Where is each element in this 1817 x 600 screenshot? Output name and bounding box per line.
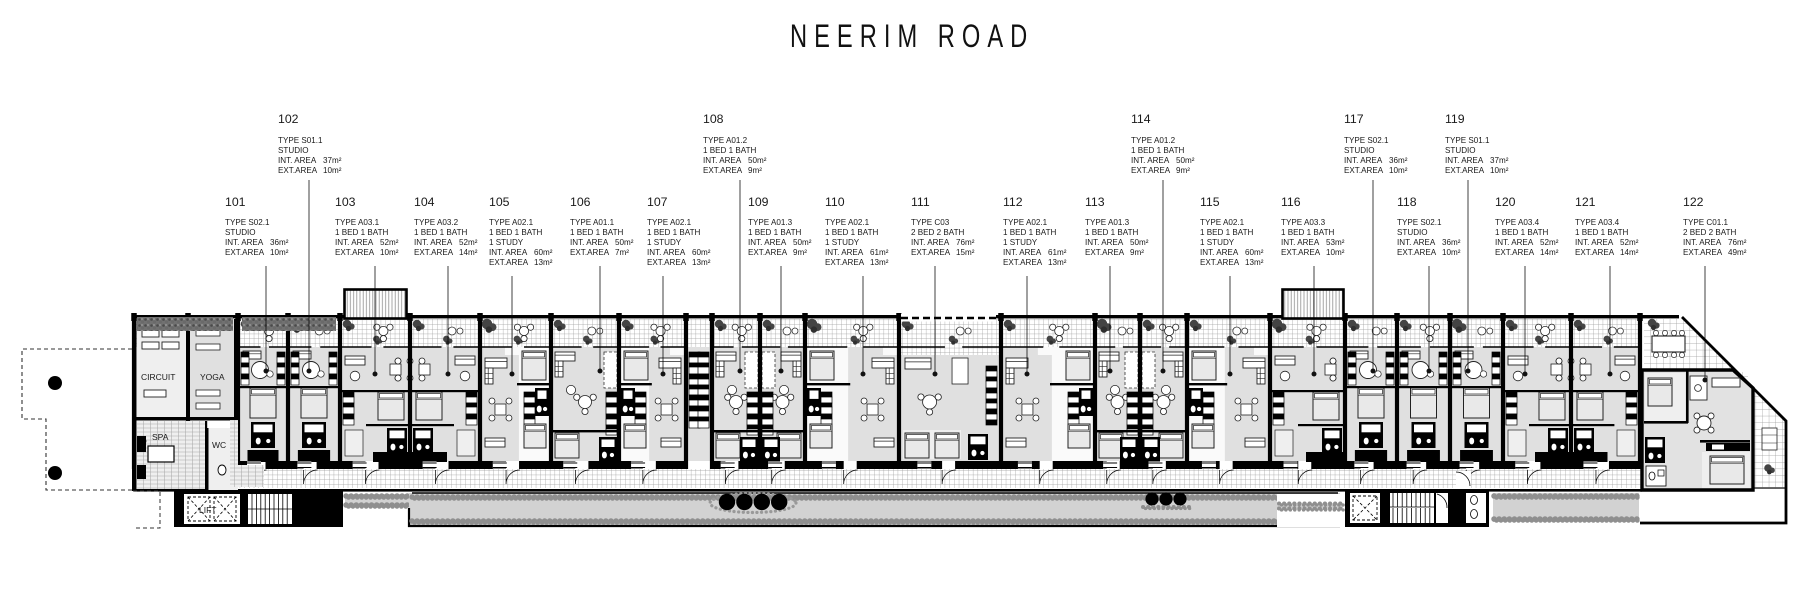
svg-text:1 BED 1 BATH: 1 BED 1 BATH <box>647 228 701 237</box>
svg-text:EXT.AREA: EXT.AREA <box>1131 166 1171 175</box>
svg-text:TYPE A02.1: TYPE A02.1 <box>825 218 870 227</box>
svg-text:10m²: 10m² <box>1326 248 1345 257</box>
svg-text:50m²: 50m² <box>1176 156 1195 165</box>
svg-text:1 BED 1 BATH: 1 BED 1 BATH <box>1575 228 1629 237</box>
svg-text:INT. AREA: INT. AREA <box>825 248 864 257</box>
svg-text:NEERIM ROAD: NEERIM ROAD <box>790 19 1034 54</box>
svg-text:13m²: 13m² <box>1048 258 1067 267</box>
svg-text:1 BED 1 BATH: 1 BED 1 BATH <box>1003 228 1057 237</box>
svg-text:50m²: 50m² <box>748 156 767 165</box>
svg-text:50m²: 50m² <box>1130 238 1149 247</box>
svg-text:1 STUDY: 1 STUDY <box>825 238 860 247</box>
svg-text:106: 106 <box>570 195 591 209</box>
svg-text:50m²: 50m² <box>615 238 634 247</box>
svg-text:121: 121 <box>1575 195 1596 209</box>
svg-text:EXT.AREA: EXT.AREA <box>570 248 610 257</box>
svg-text:INT. AREA: INT. AREA <box>1575 238 1614 247</box>
svg-text:10m²: 10m² <box>1389 166 1408 175</box>
svg-text:49m²: 49m² <box>1728 248 1747 257</box>
svg-text:EXT.AREA: EXT.AREA <box>1281 248 1321 257</box>
svg-text:EXT.AREA: EXT.AREA <box>1085 248 1125 257</box>
svg-text:STUDIO: STUDIO <box>225 228 256 237</box>
svg-text:EXT.AREA: EXT.AREA <box>1003 258 1043 267</box>
svg-text:107: 107 <box>647 195 668 209</box>
svg-text:EXT.AREA: EXT.AREA <box>825 258 865 267</box>
svg-text:EXT.AREA: EXT.AREA <box>225 248 265 257</box>
svg-text:EXT.AREA: EXT.AREA <box>1683 248 1723 257</box>
svg-text:1 STUDY: 1 STUDY <box>489 238 524 247</box>
svg-text:TYPE A03.1: TYPE A03.1 <box>335 218 380 227</box>
svg-text:122: 122 <box>1683 195 1704 209</box>
svg-text:STUDIO: STUDIO <box>1397 228 1428 237</box>
svg-text:37m²: 37m² <box>1490 156 1509 165</box>
svg-text:1 BED 1 BATH: 1 BED 1 BATH <box>1085 228 1139 237</box>
svg-text:60m²: 60m² <box>692 248 711 257</box>
svg-text:61m²: 61m² <box>1048 248 1067 257</box>
svg-text:LIFT: LIFT <box>199 505 216 515</box>
svg-text:CIRCUIT: CIRCUIT <box>141 372 175 382</box>
svg-text:9m²: 9m² <box>748 166 762 175</box>
svg-text:1 BED 1 BATH: 1 BED 1 BATH <box>1131 146 1185 155</box>
svg-text:36m²: 36m² <box>1389 156 1408 165</box>
svg-text:INT. AREA: INT. AREA <box>1445 156 1484 165</box>
svg-text:76m²: 76m² <box>956 238 975 247</box>
svg-text:1 BED 1 BATH: 1 BED 1 BATH <box>570 228 624 237</box>
svg-text:TYPE A02.1: TYPE A02.1 <box>1003 218 1048 227</box>
svg-text:60m²: 60m² <box>534 248 553 257</box>
svg-text:INT. AREA: INT. AREA <box>748 238 787 247</box>
svg-text:115: 115 <box>1200 195 1220 209</box>
svg-text:TYPE S02.1: TYPE S02.1 <box>225 218 270 227</box>
svg-text:INT. AREA: INT. AREA <box>278 156 317 165</box>
svg-text:TYPE S01.1: TYPE S01.1 <box>278 136 323 145</box>
svg-text:13m²: 13m² <box>534 258 553 267</box>
svg-text:YOGA: YOGA <box>200 372 225 382</box>
svg-text:EXT.AREA: EXT.AREA <box>1200 258 1240 267</box>
svg-text:52m²: 52m² <box>380 238 399 247</box>
svg-text:TYPE A01.1: TYPE A01.1 <box>570 218 615 227</box>
svg-text:TYPE A02.1: TYPE A02.1 <box>647 218 692 227</box>
svg-text:10m²: 10m² <box>270 248 289 257</box>
svg-text:EXT.AREA: EXT.AREA <box>911 248 951 257</box>
svg-text:10m²: 10m² <box>1442 248 1461 257</box>
svg-text:1 BED 1 BATH: 1 BED 1 BATH <box>335 228 389 237</box>
svg-text:INT. AREA: INT. AREA <box>1397 238 1436 247</box>
svg-text:TYPE S01.1: TYPE S01.1 <box>1445 136 1490 145</box>
svg-text:2 BED 2 BATH: 2 BED 2 BATH <box>911 228 965 237</box>
svg-text:INT. AREA: INT. AREA <box>1344 156 1383 165</box>
svg-text:1 BED 1 BATH: 1 BED 1 BATH <box>489 228 543 237</box>
svg-text:61m²: 61m² <box>870 248 889 257</box>
svg-text:53m²: 53m² <box>1326 238 1345 247</box>
svg-text:STUDIO: STUDIO <box>1445 146 1476 155</box>
svg-text:13m²: 13m² <box>1245 258 1264 267</box>
svg-text:TYPE A02.1: TYPE A02.1 <box>1200 218 1245 227</box>
svg-text:INT. AREA: INT. AREA <box>335 238 374 247</box>
svg-text:EXT.AREA: EXT.AREA <box>278 166 318 175</box>
svg-text:EXT.AREA: EXT.AREA <box>1344 166 1384 175</box>
svg-text:14m²: 14m² <box>459 248 478 257</box>
svg-text:113: 113 <box>1085 195 1105 209</box>
svg-text:EXT.AREA: EXT.AREA <box>1397 248 1437 257</box>
svg-text:EXT.AREA: EXT.AREA <box>1575 248 1615 257</box>
svg-text:INT. AREA: INT. AREA <box>1085 238 1124 247</box>
svg-text:1 STUDY: 1 STUDY <box>1003 238 1038 247</box>
svg-text:76m²: 76m² <box>1728 238 1747 247</box>
svg-text:102: 102 <box>278 112 299 126</box>
svg-text:INT. AREA: INT. AREA <box>703 156 742 165</box>
svg-text:104: 104 <box>414 195 435 209</box>
svg-text:1 BED 1 BATH: 1 BED 1 BATH <box>1281 228 1335 237</box>
svg-text:SPA: SPA <box>152 432 169 442</box>
svg-text:36m²: 36m² <box>1442 238 1461 247</box>
svg-text:116: 116 <box>1281 195 1301 209</box>
svg-text:EXT.AREA: EXT.AREA <box>489 258 529 267</box>
svg-text:TYPE S02.1: TYPE S02.1 <box>1344 136 1389 145</box>
svg-text:120: 120 <box>1495 195 1516 209</box>
svg-text:TYPE A03.4: TYPE A03.4 <box>1495 218 1540 227</box>
svg-text:EXT.AREA: EXT.AREA <box>414 248 454 257</box>
svg-text:1 BED 1 BATH: 1 BED 1 BATH <box>1495 228 1549 237</box>
svg-text:TYPE A03.4: TYPE A03.4 <box>1575 218 1620 227</box>
svg-text:EXT.AREA: EXT.AREA <box>335 248 375 257</box>
svg-text:INT. AREA: INT. AREA <box>1003 248 1042 257</box>
svg-text:52m²: 52m² <box>1620 238 1639 247</box>
svg-text:101: 101 <box>225 195 246 209</box>
svg-text:114: 114 <box>1131 112 1151 126</box>
svg-text:INT. AREA: INT. AREA <box>489 248 528 257</box>
svg-text:118: 118 <box>1397 195 1417 209</box>
svg-text:105: 105 <box>489 195 510 209</box>
svg-text:INT. AREA: INT. AREA <box>647 248 686 257</box>
svg-text:EXT.AREA: EXT.AREA <box>647 258 687 267</box>
svg-text:14m²: 14m² <box>1620 248 1639 257</box>
svg-text:10m²: 10m² <box>1490 166 1509 175</box>
svg-text:INT. AREA: INT. AREA <box>1683 238 1722 247</box>
svg-text:INT. AREA: INT. AREA <box>1495 238 1534 247</box>
svg-text:INT. AREA: INT. AREA <box>1200 248 1239 257</box>
svg-text:1 BED 1 BATH: 1 BED 1 BATH <box>1200 228 1254 237</box>
svg-text:TYPE S02.1: TYPE S02.1 <box>1397 218 1442 227</box>
svg-text:1 BED 1 BATH: 1 BED 1 BATH <box>703 146 757 155</box>
svg-text:13m²: 13m² <box>870 258 889 267</box>
svg-text:108: 108 <box>703 112 724 126</box>
svg-text:9m²: 9m² <box>793 248 807 257</box>
svg-text:EXT.AREA: EXT.AREA <box>703 166 743 175</box>
svg-text:37m²: 37m² <box>323 156 342 165</box>
svg-text:9m²: 9m² <box>1130 248 1144 257</box>
svg-text:52m²: 52m² <box>459 238 478 247</box>
svg-text:TYPE C03: TYPE C03 <box>911 218 950 227</box>
svg-text:9m²: 9m² <box>1176 166 1190 175</box>
svg-text:INT. AREA: INT. AREA <box>414 238 453 247</box>
svg-text:36m²: 36m² <box>270 238 289 247</box>
svg-text:14m²: 14m² <box>1540 248 1559 257</box>
svg-text:112: 112 <box>1003 195 1023 209</box>
svg-text:EXT.AREA: EXT.AREA <box>748 248 788 257</box>
svg-text:STUDIO: STUDIO <box>278 146 309 155</box>
svg-text:TYPE A03.3: TYPE A03.3 <box>1281 218 1326 227</box>
svg-text:1 BED 1 BATH: 1 BED 1 BATH <box>748 228 802 237</box>
svg-text:7m²: 7m² <box>615 248 629 257</box>
svg-text:TYPE A03.2: TYPE A03.2 <box>414 218 459 227</box>
svg-text:TYPE A01.2: TYPE A01.2 <box>703 136 748 145</box>
svg-text:EXT.AREA: EXT.AREA <box>1445 166 1485 175</box>
svg-text:1 BED 1 BATH: 1 BED 1 BATH <box>414 228 468 237</box>
svg-text:15m²: 15m² <box>956 248 975 257</box>
svg-text:109: 109 <box>748 195 769 209</box>
svg-text:111: 111 <box>911 195 930 209</box>
svg-text:52m²: 52m² <box>1540 238 1559 247</box>
svg-text:10m²: 10m² <box>380 248 399 257</box>
svg-text:TYPE C01.1: TYPE C01.1 <box>1683 218 1728 227</box>
svg-text:EXT.AREA: EXT.AREA <box>1495 248 1535 257</box>
svg-text:INT. AREA: INT. AREA <box>225 238 264 247</box>
svg-text:1 BED 1 BATH: 1 BED 1 BATH <box>825 228 879 237</box>
svg-text:50m²: 50m² <box>793 238 812 247</box>
svg-text:103: 103 <box>335 195 356 209</box>
svg-text:117: 117 <box>1344 112 1364 126</box>
svg-text:10m²: 10m² <box>323 166 342 175</box>
svg-text:WC: WC <box>212 440 226 450</box>
svg-text:TYPE A01.2: TYPE A01.2 <box>1131 136 1176 145</box>
svg-text:110: 110 <box>825 195 845 209</box>
svg-text:INT. AREA: INT. AREA <box>1131 156 1170 165</box>
svg-text:119: 119 <box>1445 112 1465 126</box>
svg-text:STUDIO: STUDIO <box>1344 146 1375 155</box>
svg-text:1 STUDY: 1 STUDY <box>647 238 682 247</box>
svg-text:INT. AREA: INT. AREA <box>570 238 609 247</box>
svg-text:INT. AREA: INT. AREA <box>1281 238 1320 247</box>
svg-text:TYPE A01.3: TYPE A01.3 <box>748 218 793 227</box>
svg-text:INT. AREA: INT. AREA <box>911 238 950 247</box>
svg-text:TYPE A02.1: TYPE A02.1 <box>489 218 534 227</box>
svg-text:1 STUDY: 1 STUDY <box>1200 238 1235 247</box>
svg-text:60m²: 60m² <box>1245 248 1264 257</box>
svg-text:TYPE A01.3: TYPE A01.3 <box>1085 218 1130 227</box>
svg-text:2 BED 2 BATH: 2 BED 2 BATH <box>1683 228 1737 237</box>
svg-text:13m²: 13m² <box>692 258 711 267</box>
